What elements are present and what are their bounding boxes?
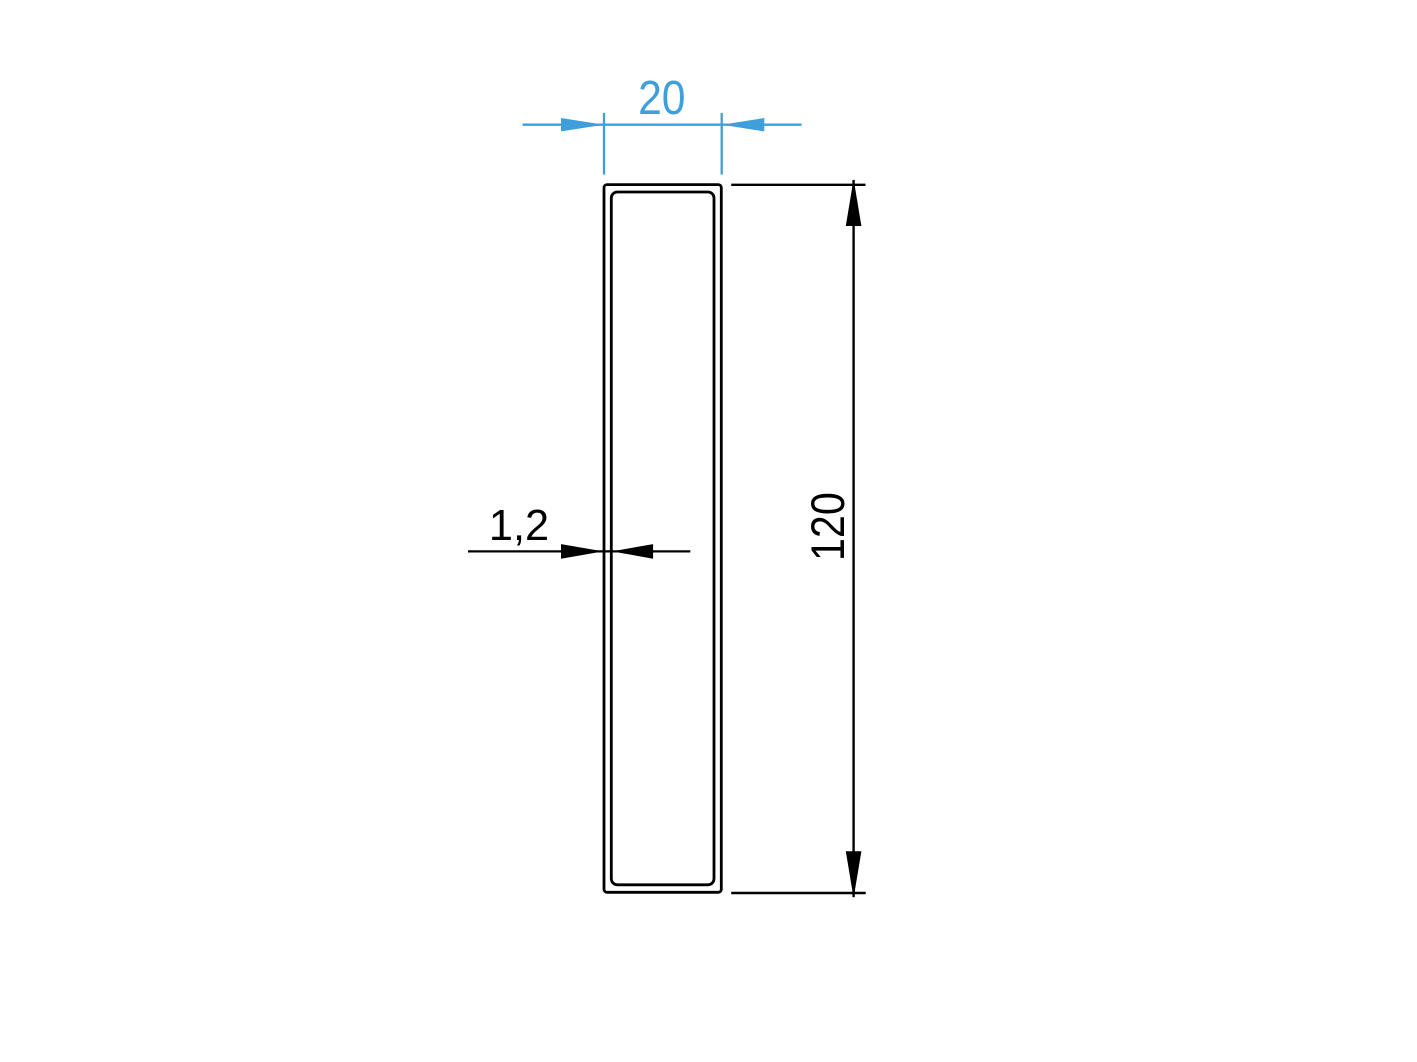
svg-text:20: 20 bbox=[638, 72, 685, 125]
svg-text:1,2: 1,2 bbox=[489, 501, 549, 550]
svg-text:120: 120 bbox=[802, 492, 855, 561]
